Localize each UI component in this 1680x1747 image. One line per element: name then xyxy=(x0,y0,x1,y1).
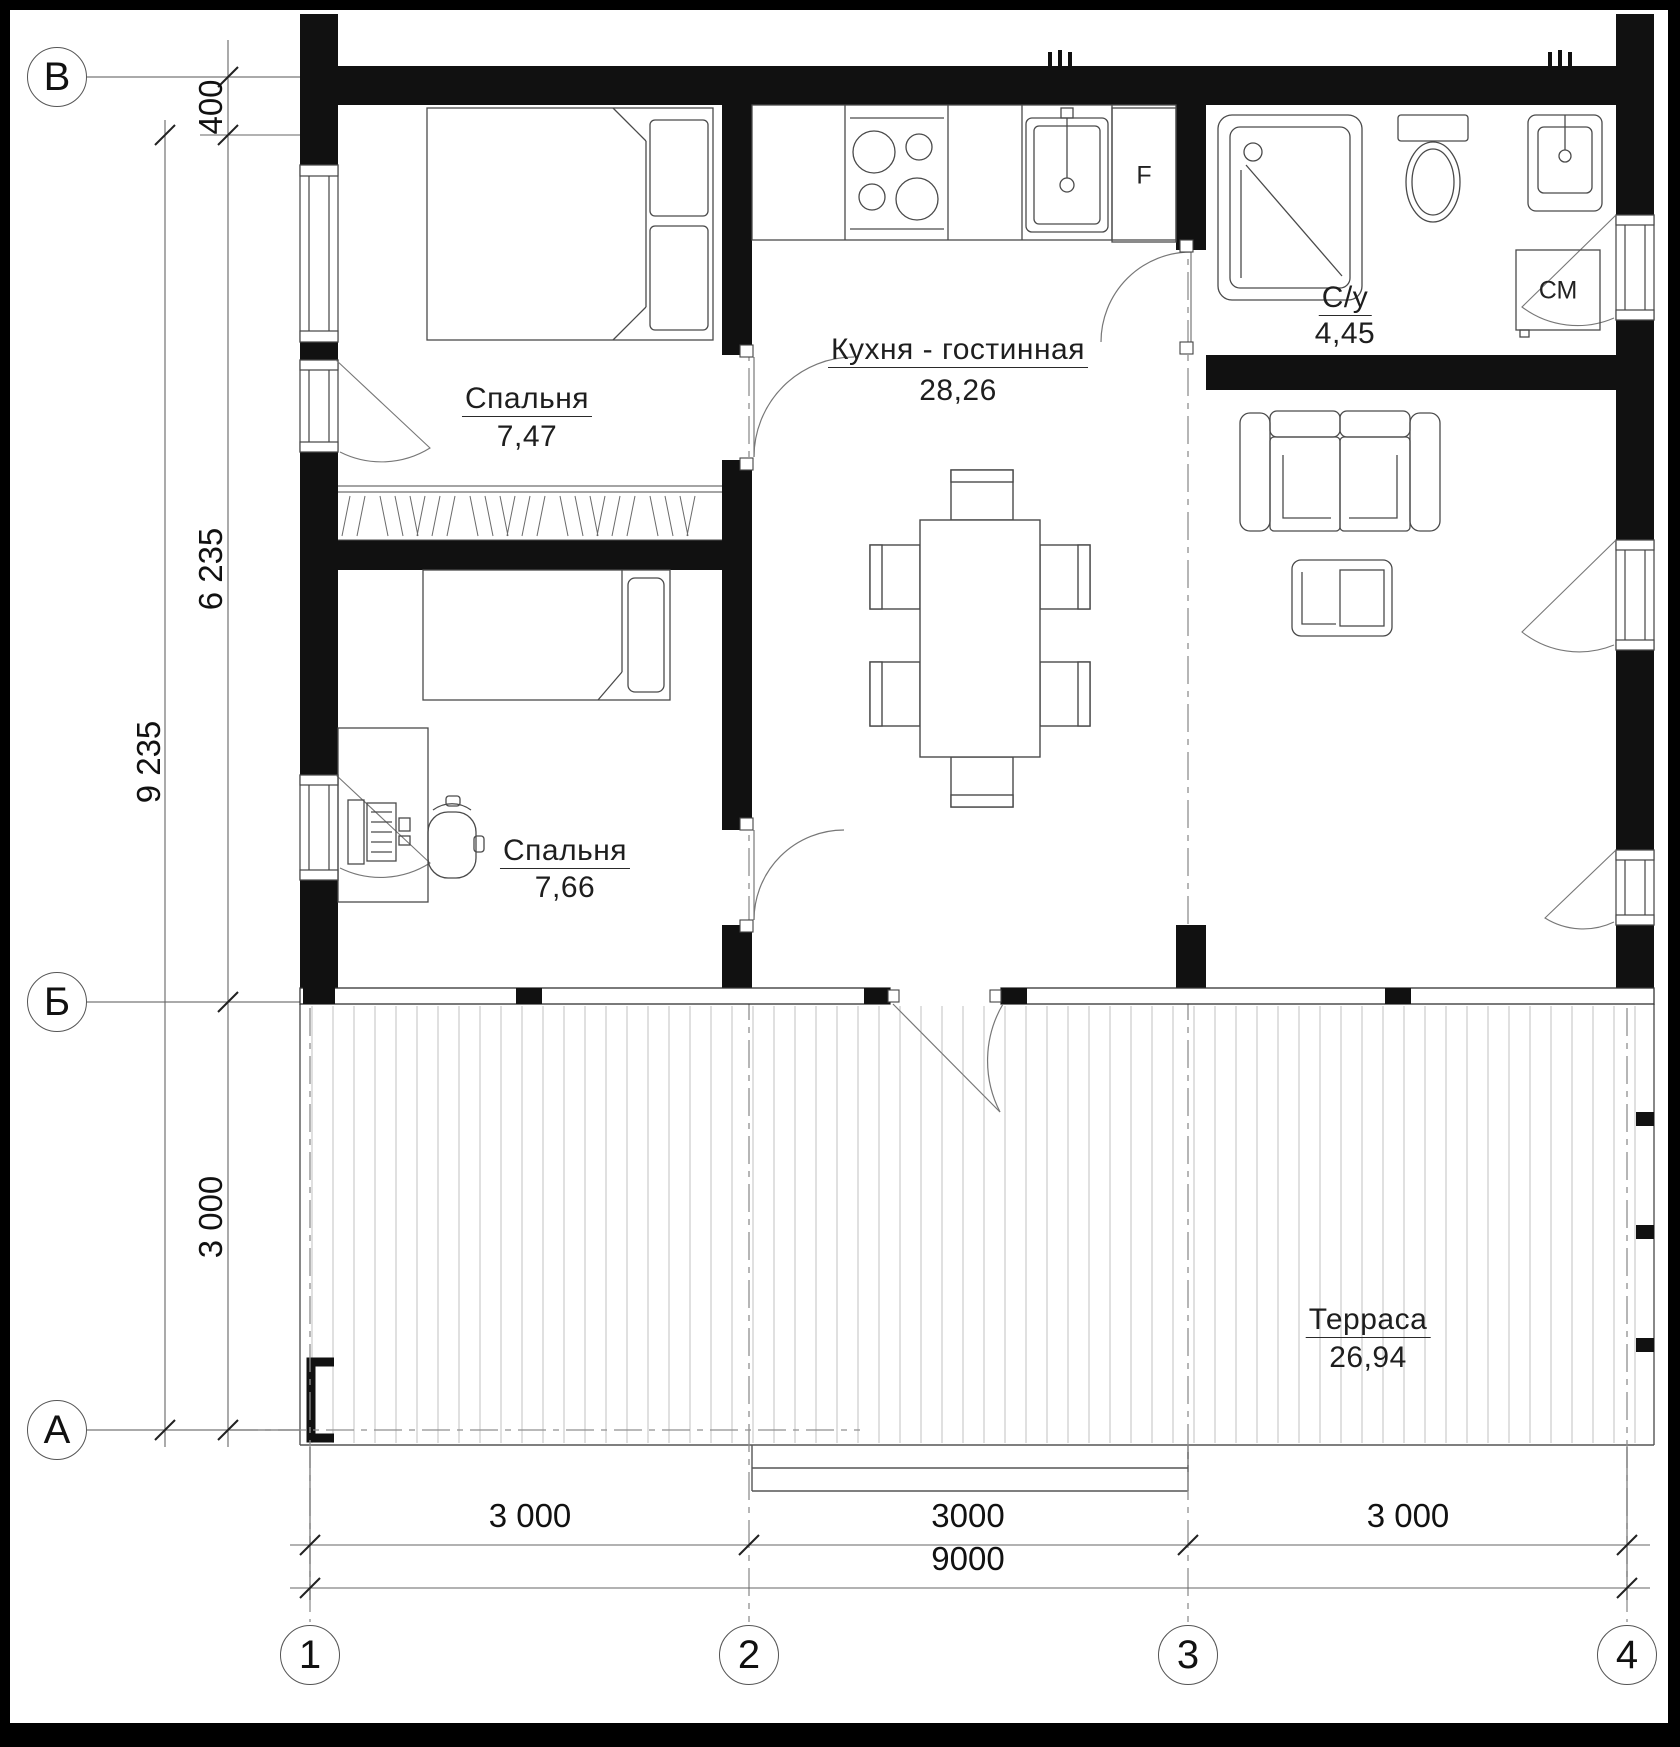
single-bed-icon xyxy=(423,570,670,700)
room-name: С/у xyxy=(1319,281,1372,316)
axis-bubble-col-2: 2 xyxy=(719,1625,779,1685)
room-label-bathroom: С/у xyxy=(1319,281,1372,315)
terrace-corner-bracket xyxy=(311,1362,334,1438)
stove-icon xyxy=(850,118,944,229)
dim-400: 400 xyxy=(192,79,230,134)
dim-span-2-3: 3000 xyxy=(931,1497,1004,1535)
kitchen-sink-icon xyxy=(1026,108,1108,232)
room-name: Терраса xyxy=(1306,1303,1431,1338)
dining-table-icon xyxy=(870,470,1090,807)
room-name: Спальня xyxy=(462,382,592,417)
terrace-steps xyxy=(752,1445,1188,1491)
axis-bubble-row-v: В xyxy=(27,47,87,107)
washer-label: СМ xyxy=(1539,277,1578,306)
dim-total-9000: 9000 xyxy=(931,1540,1004,1578)
double-bed-icon xyxy=(427,108,713,340)
wardrobe-hangers xyxy=(342,496,695,536)
dim-span-1-2: 3 000 xyxy=(489,1497,572,1535)
toilet-icon xyxy=(1398,115,1468,222)
room-area-bedroom2: 7,66 xyxy=(535,871,595,905)
floor-plan-drawing xyxy=(0,0,1680,1747)
room-label-bedroom2: Спальня xyxy=(500,834,630,868)
room-name: Спальня xyxy=(500,834,630,869)
room-area-bathroom: 4,45 xyxy=(1315,317,1375,351)
shower-icon xyxy=(1218,115,1362,300)
terrace-railing-ticks xyxy=(1636,1112,1654,1352)
axis-bubble-row-b: Б xyxy=(27,972,87,1032)
room-label-terrace: Терраса xyxy=(1306,1303,1431,1337)
wardrobe-strip xyxy=(338,486,722,540)
terrace-wall xyxy=(300,988,1654,1004)
room-name: Кухня - гостинная xyxy=(828,333,1088,368)
axis-bubble-col-4: 4 xyxy=(1597,1625,1657,1685)
sofa-icon xyxy=(1240,411,1440,531)
axis-bubble-col-1: 1 xyxy=(280,1625,340,1685)
coffee-table-icon xyxy=(1292,560,1392,636)
desk-chair-icon xyxy=(428,796,484,878)
bathroom-sink-icon xyxy=(1528,115,1602,211)
room-area-bedroom1: 7,47 xyxy=(497,420,557,454)
dim-3000-left: 3 000 xyxy=(192,1176,230,1259)
room-label-kitchen: Кухня - гостинная xyxy=(828,333,1088,367)
dim-9235: 9 235 xyxy=(130,721,168,804)
vent-ticks xyxy=(1048,50,1572,66)
dimension-lines xyxy=(165,40,1650,1600)
page-border xyxy=(0,0,1680,1747)
dim-6235: 6 235 xyxy=(192,528,230,611)
desk-icon xyxy=(338,728,428,902)
axis-bubble-col-3: 3 xyxy=(1158,1625,1218,1685)
fridge-label: F xyxy=(1136,162,1151,191)
room-area-terrace: 26,94 xyxy=(1329,1341,1407,1375)
room-area-kitchen: 28,26 xyxy=(919,374,997,408)
terrace-outline xyxy=(300,1004,1654,1445)
axis-bubble-row-a: А xyxy=(27,1400,87,1460)
terrace-deck-boards xyxy=(312,1006,1635,1443)
room-label-bedroom1: Спальня xyxy=(462,382,592,416)
dim-span-3-4: 3 000 xyxy=(1367,1497,1450,1535)
floor-plan-page: В Б А 1 2 3 4 Спальня 7,47 Кухня - гости… xyxy=(0,0,1680,1747)
